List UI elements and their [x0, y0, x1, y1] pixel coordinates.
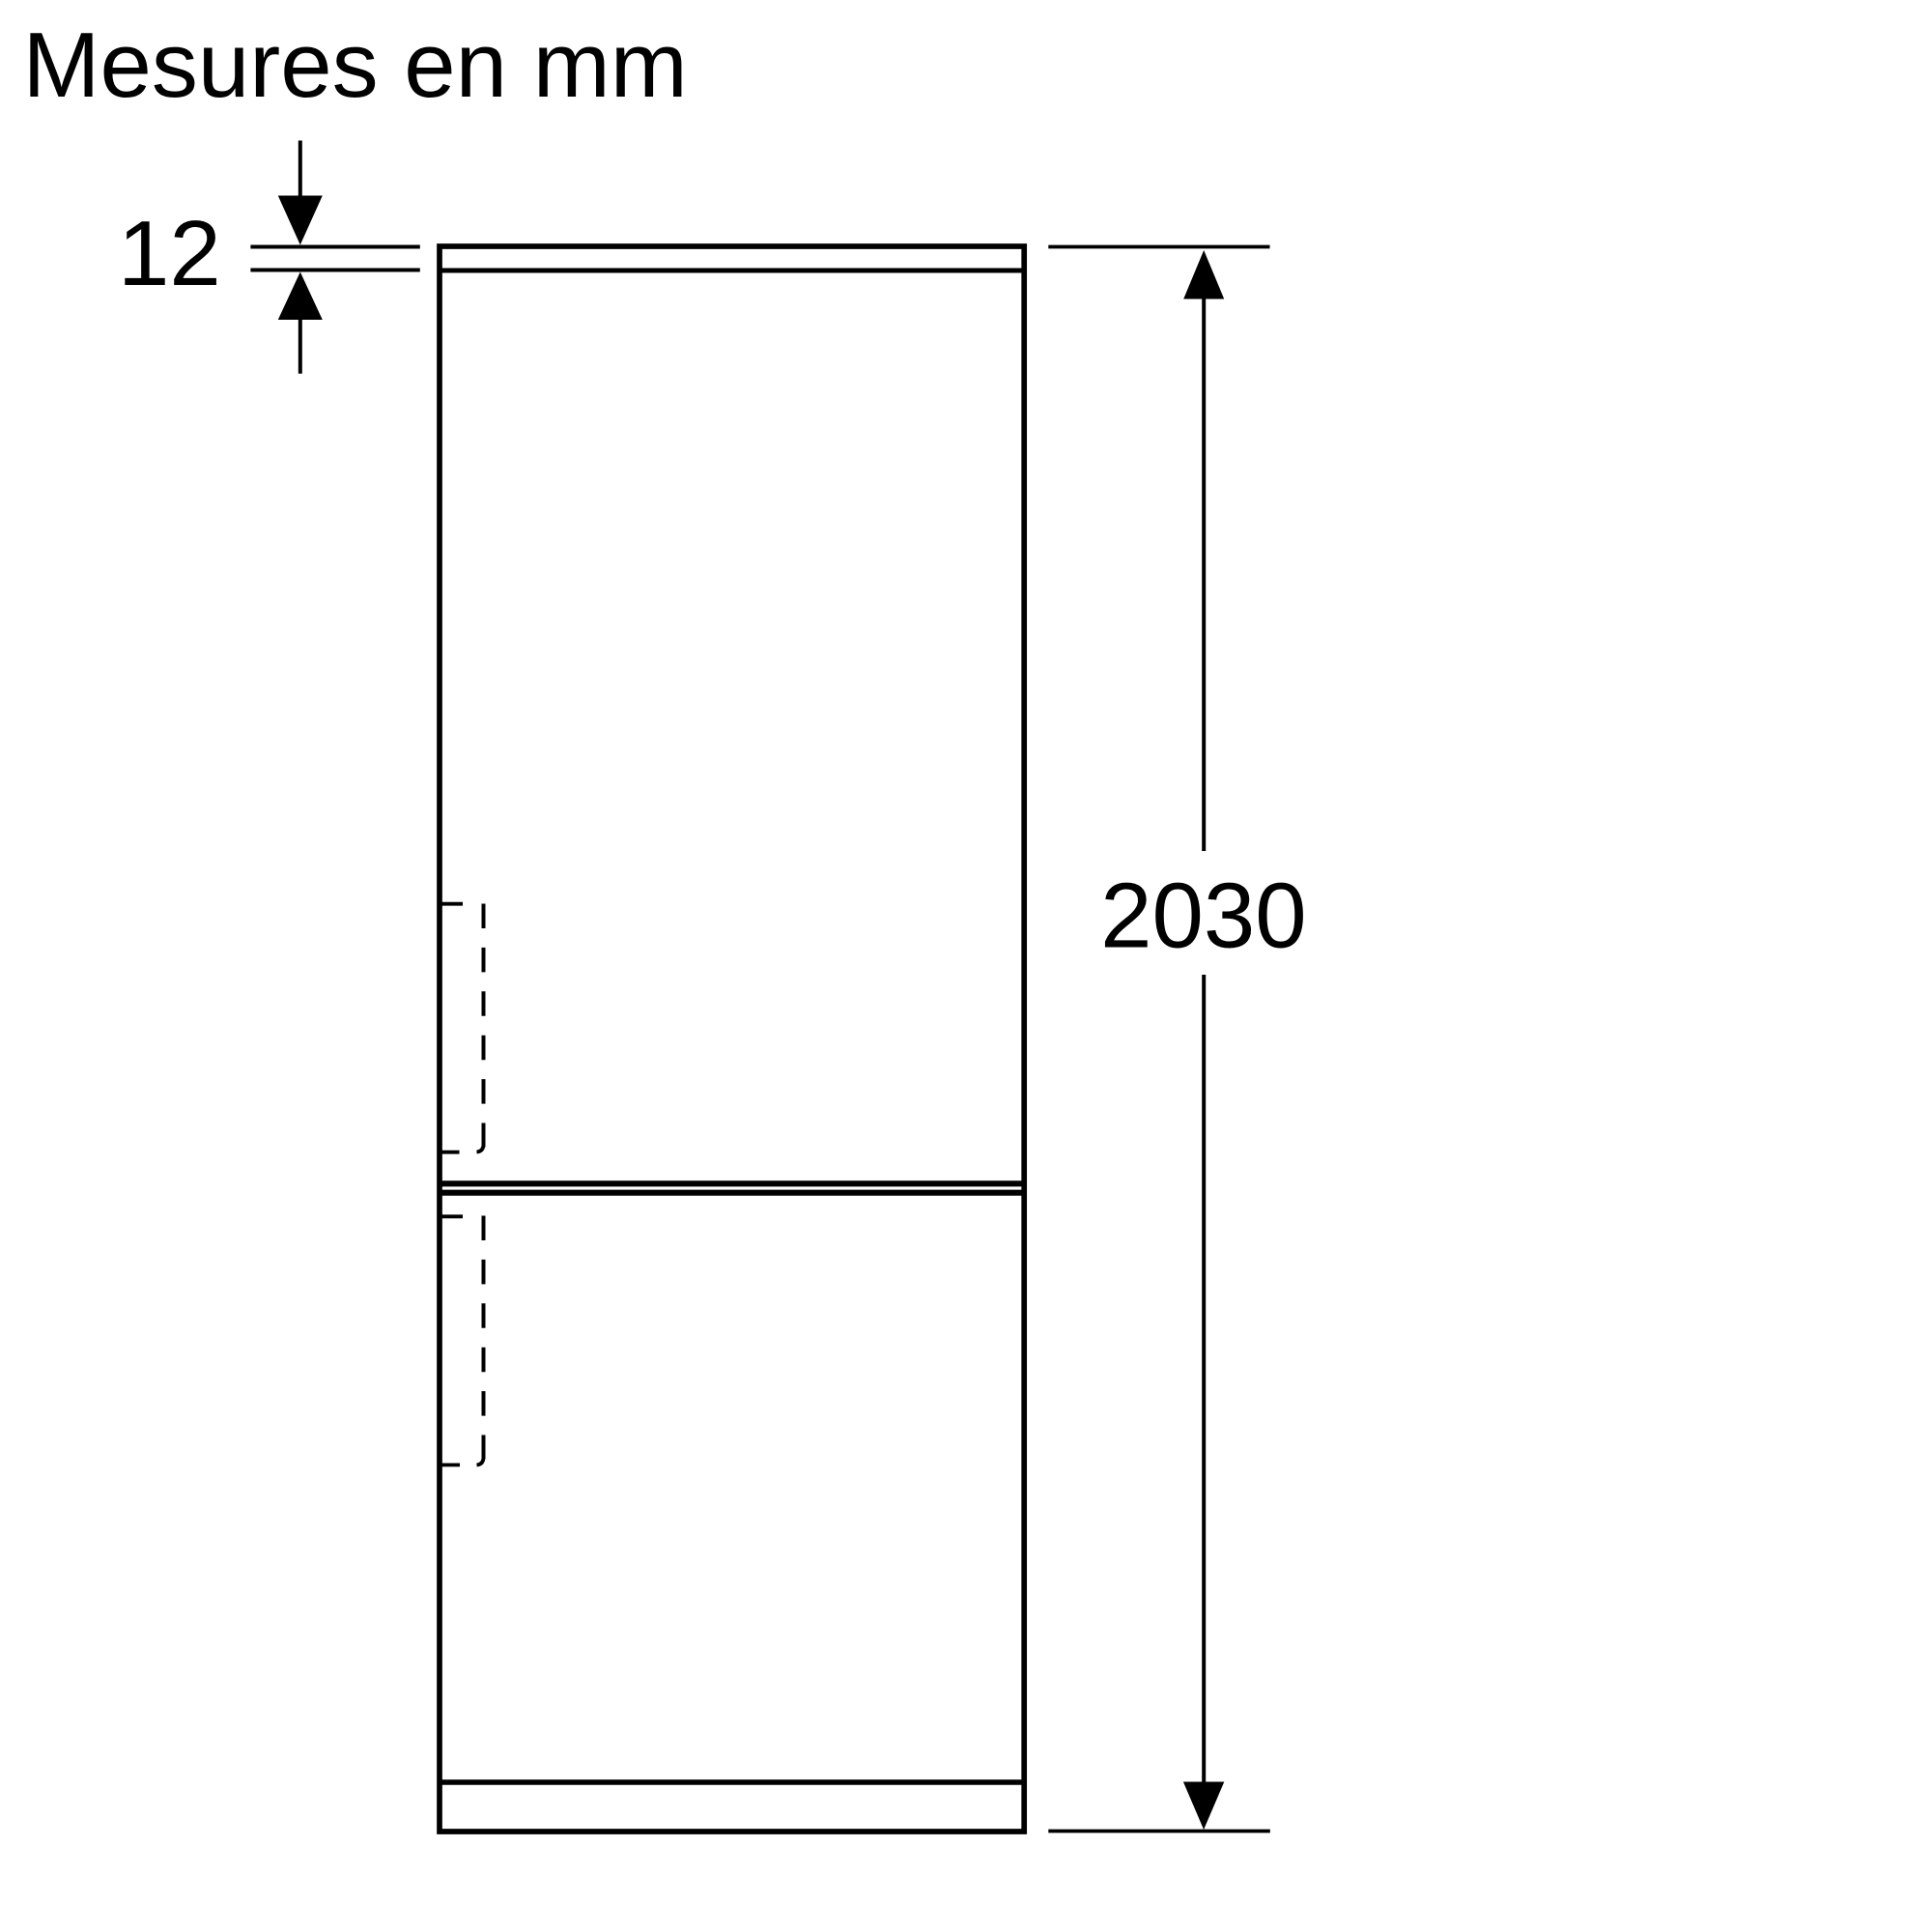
svg-text:2030: 2030 [1100, 865, 1307, 968]
svg-text:Mesures en mm: Mesures en mm [23, 14, 688, 117]
svg-text:12: 12 [118, 202, 221, 305]
